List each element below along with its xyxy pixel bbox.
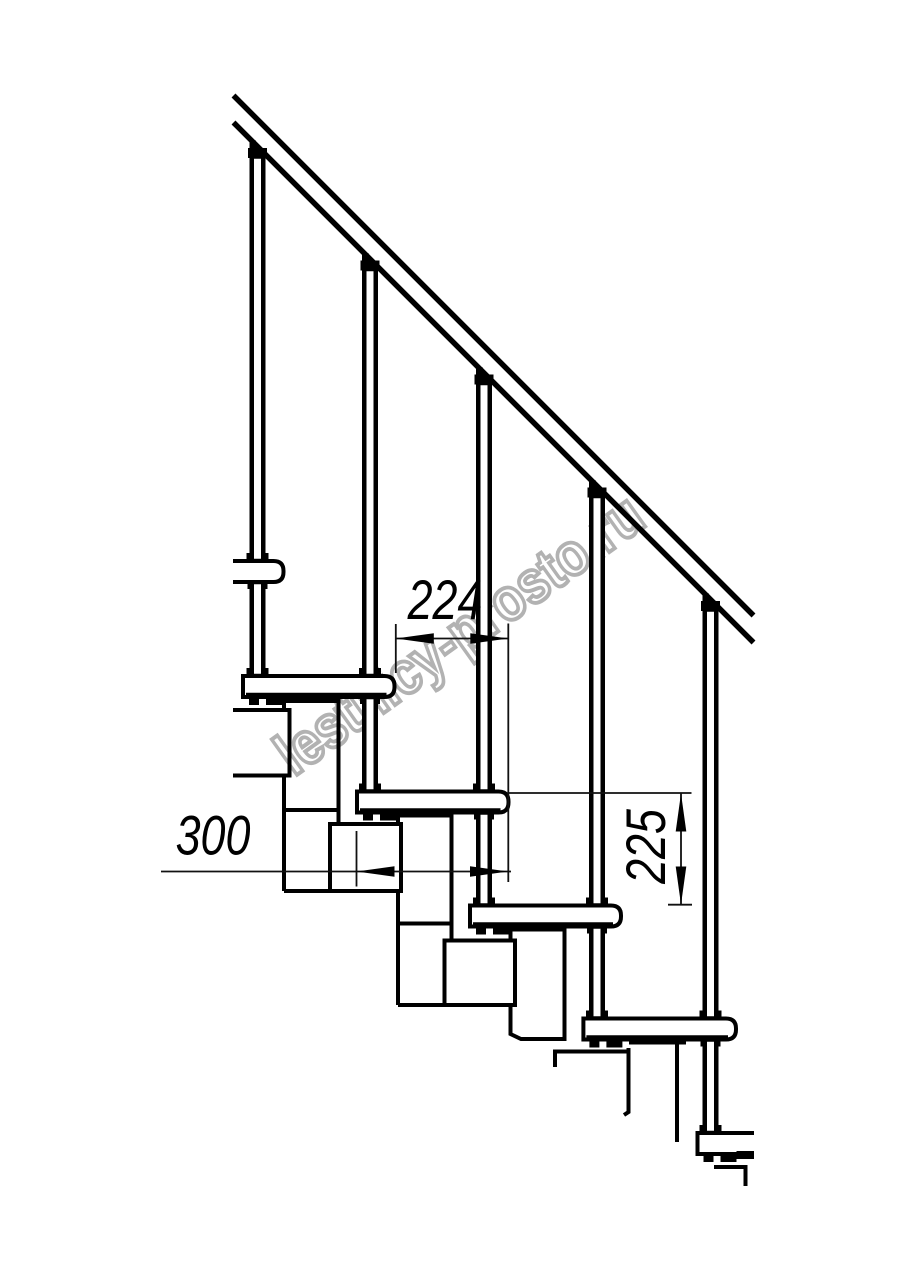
svg-text:300: 300 — [176, 804, 251, 867]
svg-text:224: 224 — [407, 568, 483, 631]
svg-text:225: 225 — [614, 808, 677, 884]
